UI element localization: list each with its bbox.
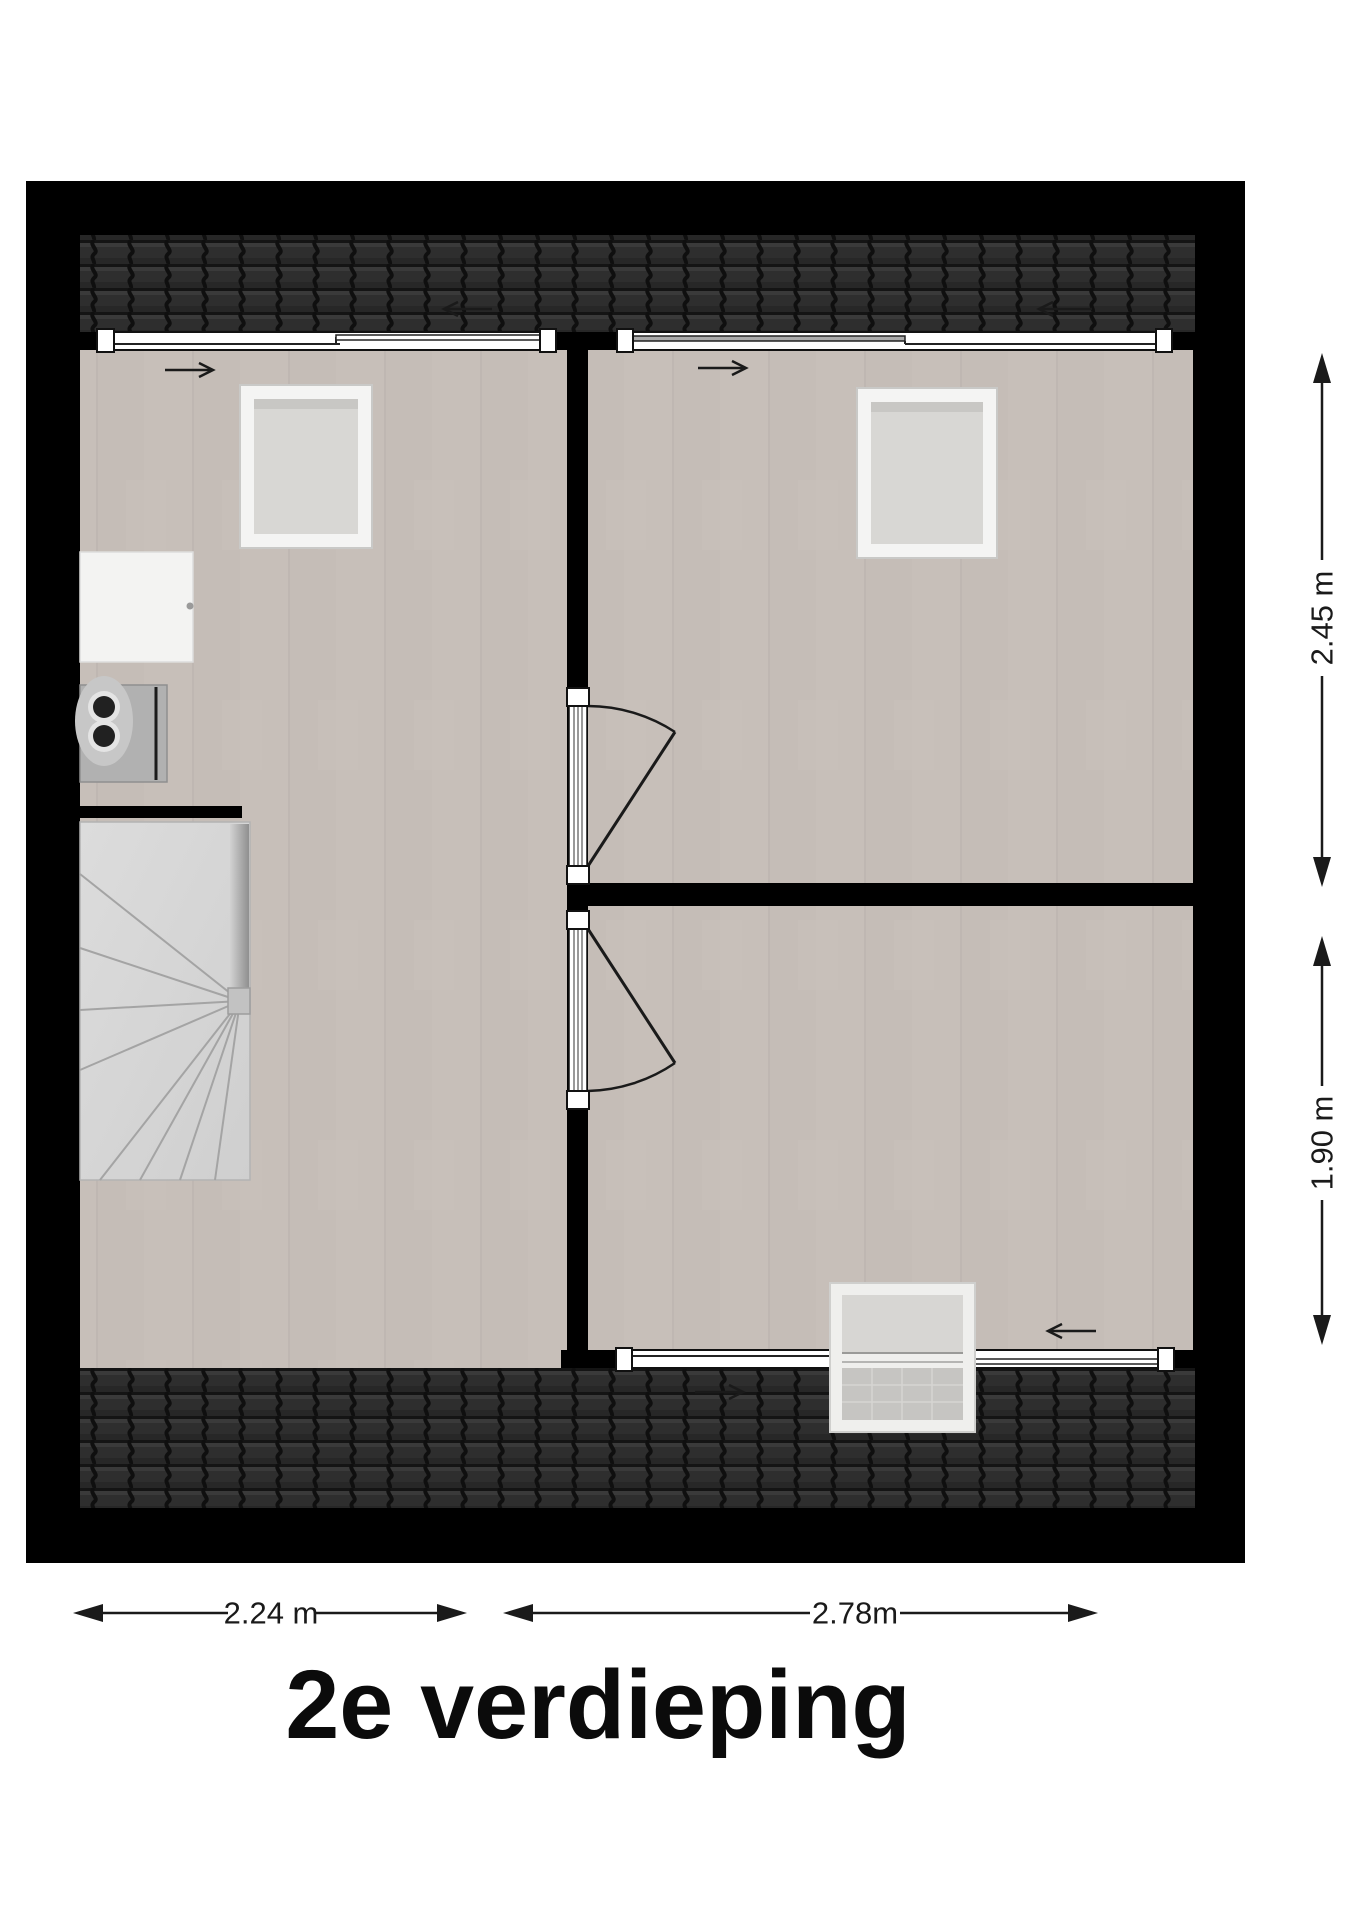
skylight-right <box>857 388 997 558</box>
door-jamb <box>567 911 589 929</box>
wall-bottom-stub <box>561 1350 617 1368</box>
ventilation-unit <box>75 676 167 782</box>
dimension-arrow-icon <box>503 1604 533 1622</box>
floorplan-svg: 2.45 m 1.90 m 2.24 m 2.78m 2e verdieping <box>0 0 1358 1920</box>
boiler-unit <box>80 552 194 662</box>
dimension-arrow-icon <box>437 1604 467 1622</box>
dimension-bottom-right <box>503 1604 1098 1622</box>
stair-newel-post <box>228 988 250 1014</box>
door-jamb <box>567 688 589 706</box>
window-strip-top-right <box>617 329 1172 352</box>
roof-band-top <box>80 235 1195 332</box>
dormer-window <box>830 1283 975 1432</box>
dimension-right-top-label: 2.45 m <box>1305 571 1340 666</box>
dimension-arrow-icon <box>1313 857 1331 887</box>
dimension-bottom-right-label: 2.78m <box>812 1596 898 1631</box>
dimension-arrow-icon <box>1313 1315 1331 1345</box>
dimension-arrow-icon <box>1313 936 1331 966</box>
pipe-icon <box>93 725 115 747</box>
skylight-left <box>240 385 372 548</box>
window-strip-top-left <box>97 329 556 352</box>
wall-stair-stub <box>80 806 242 818</box>
roof-band-bottom <box>80 1368 1195 1508</box>
floorplan-page: 2.45 m 1.90 m 2.24 m 2.78m 2e verdieping <box>0 0 1358 1920</box>
boiler-handle-dot <box>187 603 194 610</box>
door-jamb <box>567 866 589 884</box>
floor-title: 2e verdieping <box>285 1650 910 1759</box>
wall-horizontal <box>567 883 1193 906</box>
dimension-right-bottom-label: 1.90 m <box>1305 1096 1340 1191</box>
spiral-staircase <box>80 822 250 1180</box>
door-jamb <box>567 1091 589 1109</box>
dimension-arrow-icon <box>1313 353 1331 383</box>
dimension-arrow-icon <box>73 1604 103 1622</box>
dimension-arrow-icon <box>1068 1604 1098 1622</box>
pipe-icon <box>93 696 115 718</box>
dimension-bottom-left-label: 2.24 m <box>224 1596 319 1631</box>
